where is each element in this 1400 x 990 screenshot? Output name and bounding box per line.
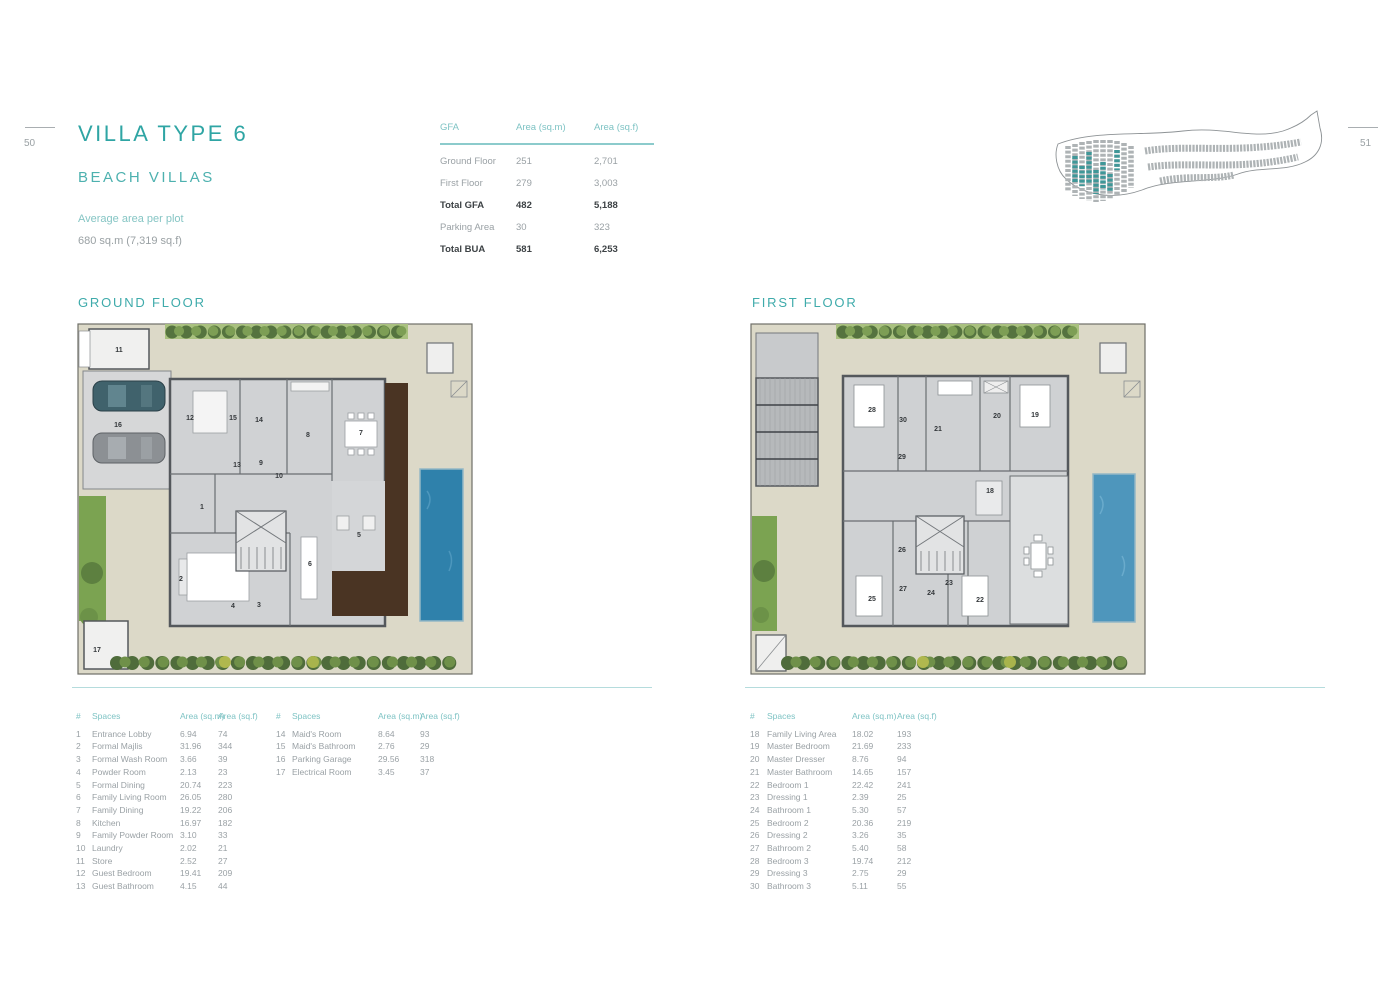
spaces-row: 6Family Living Room26.05280 xyxy=(76,791,254,804)
gate-structure xyxy=(427,343,453,373)
svg-text:24: 24 xyxy=(927,590,935,597)
svg-text:17: 17 xyxy=(93,647,101,654)
svg-text:7: 7 xyxy=(359,430,363,437)
average-area-value: 680 sq.m (7,319 sq.f) xyxy=(78,235,182,247)
hedge-top xyxy=(836,324,1079,339)
page-number-right: 51 xyxy=(1360,138,1371,149)
spaces-row: 12Guest Bedroom19.41209 xyxy=(76,867,254,880)
svg-text:25: 25 xyxy=(868,596,876,603)
gfa-row: Parking Area30323 xyxy=(440,216,654,238)
spaces-row: 25Bedroom 220.36219 xyxy=(750,817,933,830)
spaces-row: 8Kitchen16.97182 xyxy=(76,817,254,830)
average-area-label: Average area per plot xyxy=(78,213,184,225)
spaces-row: 30Bathroom 35.1155 xyxy=(750,880,933,893)
spaces-row: 22Bedroom 122.42241 xyxy=(750,779,933,792)
page-number-rule-left xyxy=(25,127,55,128)
spaces-row: 9Family Powder Room3.1033 xyxy=(76,829,254,842)
staircase xyxy=(236,511,286,571)
spaces-row: 26Dressing 23.2635 xyxy=(750,829,933,842)
ground-floor-label: GROUND FLOOR xyxy=(78,295,206,310)
svg-text:23: 23 xyxy=(945,580,953,587)
svg-text:14: 14 xyxy=(255,417,263,424)
lawn xyxy=(79,496,106,626)
svg-text:28: 28 xyxy=(868,407,876,414)
roof-block xyxy=(756,333,818,378)
spaces-row: 16Parking Garage29.56318 xyxy=(276,753,456,766)
svg-text:5: 5 xyxy=(357,532,361,539)
gfa-row: First Floor2793,003 xyxy=(440,172,654,194)
spaces-row: 5Formal Dining20.74223 xyxy=(76,779,254,792)
brochure-page: { "page": { "left_number": "50", "right_… xyxy=(0,0,1400,990)
svg-text:19: 19 xyxy=(1031,412,1039,419)
svg-text:16: 16 xyxy=(114,422,122,429)
spaces-row: 28Bedroom 319.74212 xyxy=(750,855,933,868)
spaces-header-row: #SpacesArea (sq.m)Area (sq.f) xyxy=(276,710,456,723)
svg-text:11: 11 xyxy=(115,347,123,354)
spaces-row: 13Guest Bathroom4.1544 xyxy=(76,880,254,893)
masterplan-map xyxy=(1048,104,1328,230)
spaces-row: 19Master Bedroom21.69233 xyxy=(750,740,933,753)
svg-text:1: 1 xyxy=(200,504,204,511)
svg-text:2: 2 xyxy=(179,576,183,583)
svg-text:9: 9 xyxy=(259,460,263,467)
spaces-row: 3Formal Wash Room3.6639 xyxy=(76,753,254,766)
spaces-row: 2Formal Majlis31.96344 xyxy=(76,740,254,753)
spaces-header-row: #SpacesArea (sq.m)Area (sq.f) xyxy=(76,710,254,723)
spaces-row: 29Dressing 32.7529 xyxy=(750,867,933,880)
svg-text:27: 27 xyxy=(899,586,907,593)
gate-structure xyxy=(1100,343,1126,373)
svg-text:21: 21 xyxy=(934,426,942,433)
gfa-col-label: GFA xyxy=(440,122,516,133)
divider-left xyxy=(72,687,652,688)
swimming-pool xyxy=(420,469,463,621)
spaces-row: 18Family Living Area18.02193 xyxy=(750,728,933,741)
corner-structure xyxy=(756,635,786,671)
page-number-rule-right xyxy=(1348,127,1378,128)
svg-text:4: 4 xyxy=(231,603,235,610)
ground-floor-plan: 1116121514139110875243617 xyxy=(75,321,475,679)
gfa-row: Ground Floor2512,701 xyxy=(440,150,654,172)
gfa-col-sqf: Area (sq.f) xyxy=(594,122,654,133)
page-title: VILLA TYPE 6 xyxy=(78,121,248,147)
svg-text:30: 30 xyxy=(899,417,907,424)
svg-text:13: 13 xyxy=(233,462,241,469)
spaces-table-ground-2: #SpacesArea (sq.m)Area (sq.f)14Maid's Ro… xyxy=(276,710,456,779)
utility-units xyxy=(79,331,90,367)
divider-right xyxy=(745,687,1325,688)
spaces-row: 10Laundry2.0221 xyxy=(76,842,254,855)
spaces-row: 7Family Dining19.22206 xyxy=(76,804,254,817)
svg-text:26: 26 xyxy=(898,547,906,554)
svg-text:15: 15 xyxy=(229,415,237,422)
gfa-table-header: GFA Area (sq.m) Area (sq.f) xyxy=(440,122,654,145)
lawn xyxy=(752,516,777,631)
spaces-row: 4Powder Room2.1323 xyxy=(76,766,254,779)
page-subtitle: BEACH VILLAS xyxy=(78,169,215,186)
spaces-row: 24Bathroom 15.3057 xyxy=(750,804,933,817)
spaces-row: 20Master Dresser8.7694 xyxy=(750,753,933,766)
gfa-table: GFA Area (sq.m) Area (sq.f) Ground Floor… xyxy=(440,122,654,260)
gfa-row: Total BUA5816,253 xyxy=(440,238,654,260)
spaces-row: 21Master Bathroom14.65157 xyxy=(750,766,933,779)
svg-text:18: 18 xyxy=(986,488,994,495)
spaces-row: 23Dressing 12.3925 xyxy=(750,791,933,804)
svg-text:12: 12 xyxy=(186,415,194,422)
svg-text:8: 8 xyxy=(306,432,310,439)
svg-text:29: 29 xyxy=(898,454,906,461)
hedge-top xyxy=(165,324,408,339)
spaces-table-first: #SpacesArea (sq.m)Area (sq.f)18Family Li… xyxy=(750,710,933,893)
car xyxy=(93,433,165,463)
gfa-row: Total GFA4825,188 xyxy=(440,194,654,216)
svg-text:22: 22 xyxy=(976,597,984,604)
svg-text:20: 20 xyxy=(993,413,1001,420)
first-floor-plan: 28302921201918262527242322 xyxy=(748,321,1148,679)
first-floor-label: FIRST FLOOR xyxy=(752,295,858,310)
car xyxy=(93,381,165,411)
spaces-row: 27Bathroom 25.4058 xyxy=(750,842,933,855)
spaces-row: 11Store2.5227 xyxy=(76,855,254,868)
svg-text:3: 3 xyxy=(257,602,261,609)
pergola-roof xyxy=(756,378,818,486)
svg-text:6: 6 xyxy=(308,561,312,568)
gfa-table-body: Ground Floor2512,701First Floor2793,003T… xyxy=(440,150,654,260)
spaces-row: 14Maid's Room8.6493 xyxy=(276,728,456,741)
page-number-left: 50 xyxy=(24,138,35,149)
spaces-row: 17Electrical Room3.4537 xyxy=(276,766,456,779)
spaces-header-row: #SpacesArea (sq.m)Area (sq.f) xyxy=(750,710,933,723)
gfa-col-sqm: Area (sq.m) xyxy=(516,122,594,133)
svg-text:10: 10 xyxy=(275,473,283,480)
spaces-row: 1Entrance Lobby6.9474 xyxy=(76,728,254,741)
staircase xyxy=(916,516,964,574)
spaces-row: 15Maid's Bathroom2.7629 xyxy=(276,740,456,753)
spaces-table-ground-1: #SpacesArea (sq.m)Area (sq.f)1Entrance L… xyxy=(76,710,254,893)
swimming-pool xyxy=(1093,474,1135,622)
